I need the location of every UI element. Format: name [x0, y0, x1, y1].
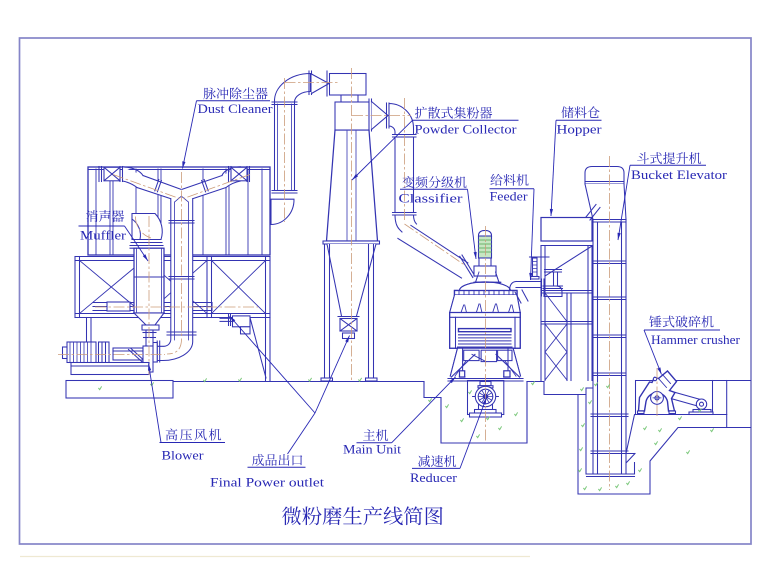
svg-text:Dust Cleaner: Dust Cleaner	[198, 102, 274, 116]
svg-text:Hopper: Hopper	[557, 123, 603, 137]
svg-text:Bucket Elevator: Bucket Elevator	[631, 168, 728, 182]
svg-text:Muffler: Muffler	[80, 229, 127, 243]
svg-text:Classifier: Classifier	[399, 192, 464, 206]
svg-text:Powder Collector: Powder Collector	[415, 123, 518, 137]
svg-text:Reducer: Reducer	[410, 471, 458, 485]
svg-text:Final Power outlet: Final Power outlet	[210, 476, 325, 490]
svg-text:Blower: Blower	[162, 449, 205, 463]
svg-text:Feeder: Feeder	[490, 190, 529, 204]
svg-text:Main Unit: Main Unit	[343, 443, 402, 457]
svg-text:Hammer crusher: Hammer crusher	[651, 333, 741, 347]
